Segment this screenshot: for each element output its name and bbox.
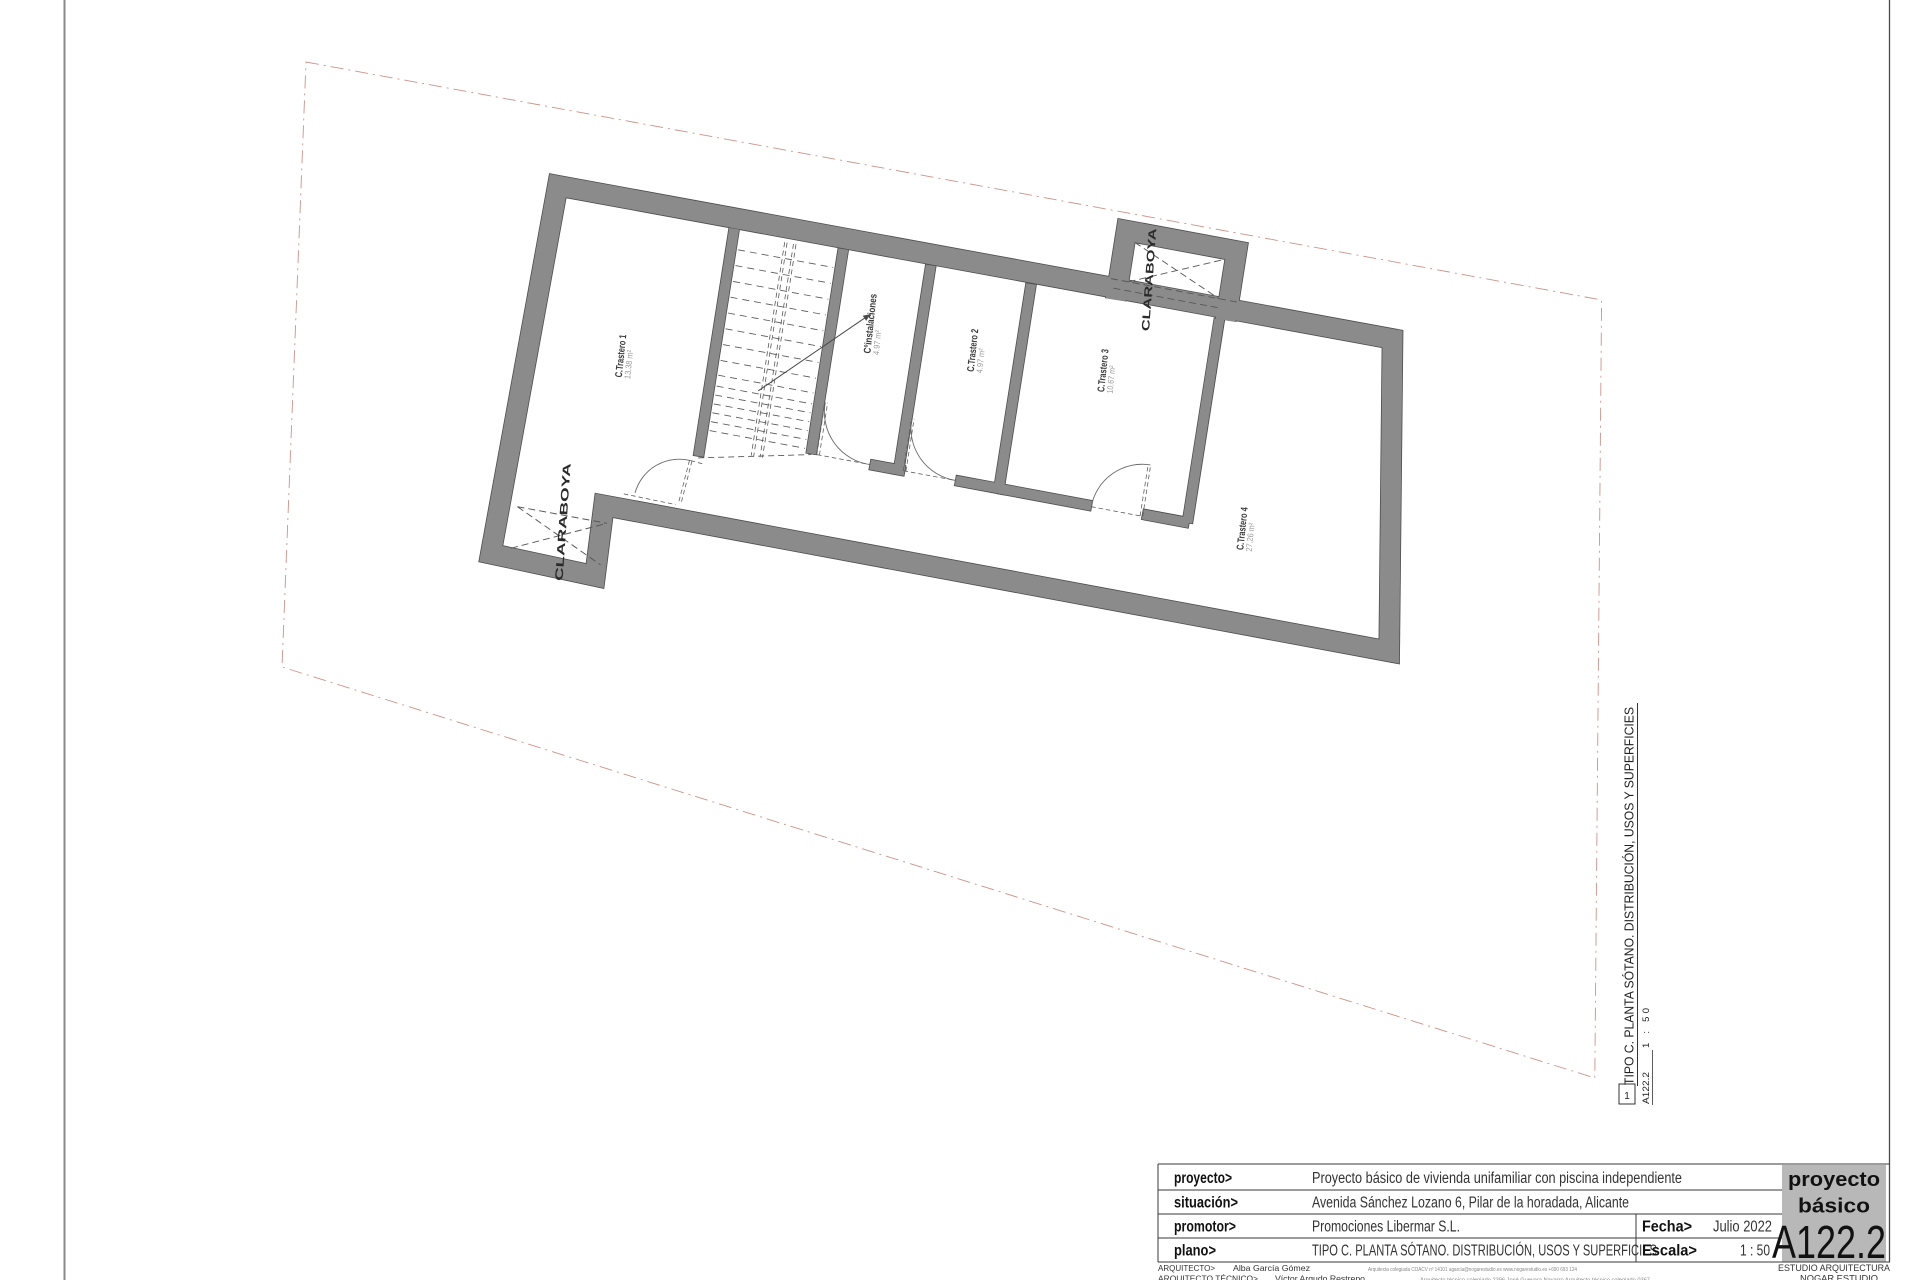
svg-text:Proyecto básico de vivienda un: Proyecto básico de vivienda unifamiliar … (1312, 1170, 1682, 1187)
svg-text:situación>: situación> (1174, 1195, 1238, 1212)
svg-text:proyecto: proyecto (1788, 1169, 1880, 1191)
svg-text:Julio 2022: Julio 2022 (1713, 1219, 1772, 1236)
svg-text:1: 1 (1624, 1091, 1630, 1102)
svg-text:promotor>: promotor> (1174, 1219, 1236, 1236)
svg-text:plano>: plano> (1174, 1243, 1216, 1260)
svg-text:TIPO C. PLANTA SÓTANO. DISTRIB: TIPO C. PLANTA SÓTANO. DISTRIBUCIÓN, USO… (1312, 1243, 1657, 1260)
svg-text:1 : 50: 1 : 50 (1740, 1243, 1770, 1260)
svg-text:Víctor Argudo Restrepo: Víctor Argudo Restrepo (1275, 1274, 1365, 1280)
svg-text:Promociones Libermar S.L.: Promociones Libermar S.L. (1312, 1219, 1460, 1236)
svg-text:básico: básico (1798, 1196, 1870, 1218)
svg-text:Avenida Sánchez Lozano 6, Pila: Avenida Sánchez Lozano 6, Pilar de la ho… (1312, 1195, 1629, 1212)
svg-text:NOGAR ESTUDIO: NOGAR ESTUDIO (1800, 1274, 1878, 1280)
svg-text:ARQUITECTO TÉCNICO>: ARQUITECTO TÉCNICO> (1158, 1274, 1258, 1280)
svg-text:A122.2: A122.2 (1641, 1072, 1652, 1104)
svg-text:TIPO C. PLANTA SÓTANO. DISTRIB: TIPO C. PLANTA SÓTANO. DISTRIBUCIÓN, USO… (1622, 707, 1637, 1085)
svg-text:Arquitecta colegiada COACV nº: Arquitecta colegiada COACV nº 14101 agar… (1368, 1266, 1577, 1273)
svg-text:Escala>: Escala> (1642, 1243, 1697, 1260)
svg-text:Fecha>: Fecha> (1642, 1219, 1692, 1236)
svg-text:proyecto>: proyecto> (1174, 1170, 1232, 1187)
svg-text:ESTUDIO ARQUITECTURA: ESTUDIO ARQUITECTURA (1778, 1263, 1891, 1274)
svg-text:Alba García Gómez: Alba García Gómez (1233, 1263, 1310, 1273)
svg-text:A122.2: A122.2 (1772, 1216, 1886, 1268)
svg-text:ARQUITECTO>: ARQUITECTO> (1158, 1263, 1215, 1273)
